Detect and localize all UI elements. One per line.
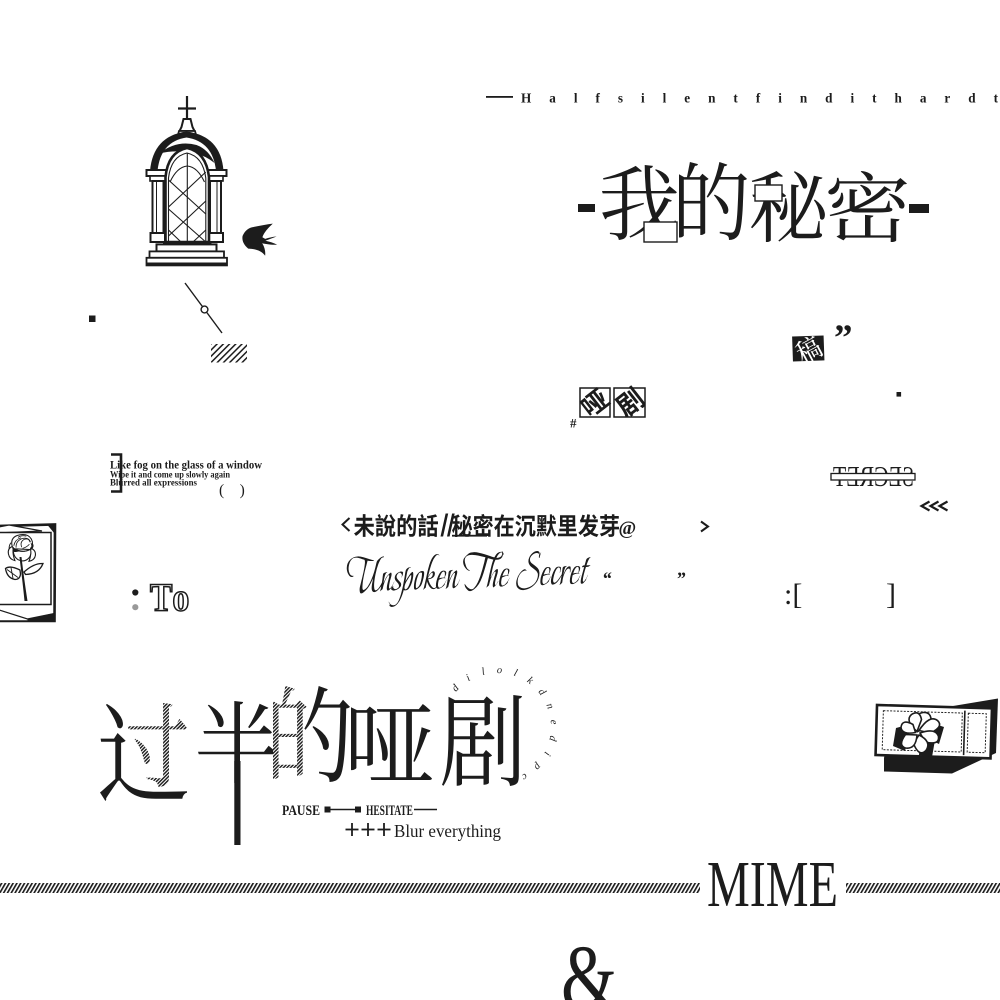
svg-text:Blur everything: Blur everything [394, 821, 501, 841]
svg-text:]: ] [886, 578, 896, 611]
svg-text:#: # [570, 416, 577, 431]
svg-text:&: & [561, 926, 617, 1000]
svg-text:PAUSE: PAUSE [282, 802, 320, 819]
svg-text:@: @ [619, 518, 637, 539]
svg-text::[: :[ [784, 578, 802, 611]
svg-text:”: ” [834, 318, 853, 359]
svg-text:HESITATE: HESITATE [366, 802, 413, 819]
svg-text:MIME: MIME [707, 848, 838, 921]
svg-text:”: ” [676, 569, 686, 590]
svg-text:( ): ( ) [219, 482, 245, 499]
svg-text:Blurred all expressions: Blurred all expressions [110, 478, 197, 489]
svg-text:o: o [497, 665, 503, 676]
svg-text:“: “ [602, 569, 612, 590]
